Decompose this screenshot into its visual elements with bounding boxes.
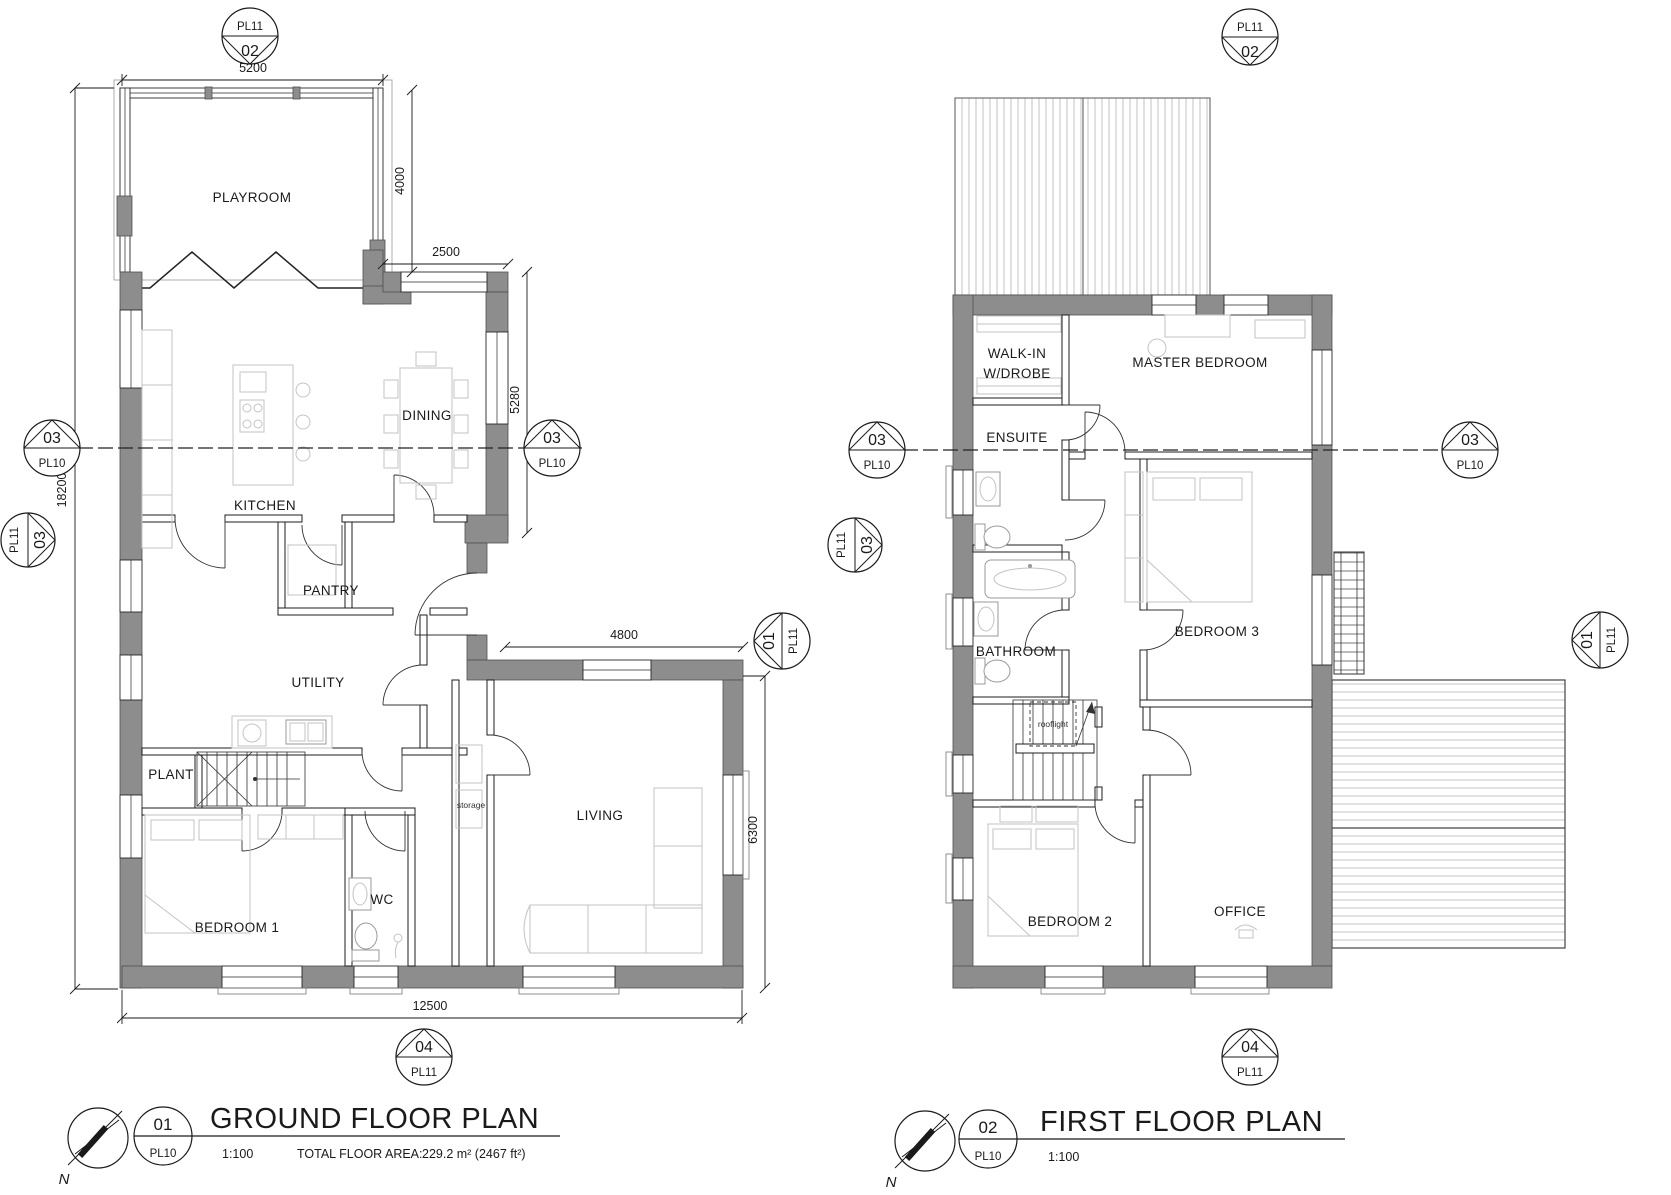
gf-scale: 1:100 xyxy=(222,1147,253,1161)
gf-title: GROUND FLOOR PLAN xyxy=(210,1103,539,1135)
ff-marker-top-sheet: PL11 xyxy=(1237,22,1263,34)
ff-marker-elev-right-sheet: PL11 xyxy=(1606,627,1618,653)
gf-marker-side-left-num: 03 xyxy=(32,531,49,549)
gf-label-storage: storage xyxy=(457,800,486,810)
ff-marker-bottom: 04 PL11 xyxy=(1222,1029,1278,1085)
ff-label-bathroom: BATHROOM xyxy=(976,644,1056,659)
gf-label-pantry: PANTRY xyxy=(303,583,359,598)
floor-plan-sheet: 5200 4000 2500 5280 18200 4800 6300 xyxy=(0,0,1671,1195)
gf-dim-bay-width: 2500 xyxy=(432,245,460,259)
gf-dim-overall-height: 18200 xyxy=(55,473,69,508)
gf-playroom-roof-outline xyxy=(114,80,392,280)
gf-title-number: 01 xyxy=(154,1115,173,1134)
gf-marker-section-right-sheet: PL10 xyxy=(539,458,566,470)
ff-title: FIRST FLOOR PLAN xyxy=(1040,1106,1323,1138)
gf-marker-section-left-num: 03 xyxy=(43,430,61,447)
gf-label-kitchen: KITCHEN xyxy=(234,498,296,513)
ff-marker-section-left-sheet: PL10 xyxy=(864,460,891,472)
ff-interior-walls xyxy=(973,315,1312,966)
gf-marker-section-left-sheet: PL10 xyxy=(39,458,66,470)
gf-playroom-glazing xyxy=(117,87,385,285)
ff-ensuite-fixtures xyxy=(975,472,1010,550)
ff-title-number: 02 xyxy=(979,1118,998,1137)
gf-label-plant: PLANT xyxy=(148,767,194,782)
gf-label-dining: DINING xyxy=(402,408,452,423)
gf-stairs xyxy=(197,752,305,806)
gf-windows xyxy=(120,272,749,994)
gf-dim-overall-width: 12500 xyxy=(413,999,448,1013)
plans-drawing: 5200 4000 2500 5280 18200 4800 6300 xyxy=(0,0,1671,1195)
gf-exterior-walls xyxy=(120,272,743,988)
ff-doors xyxy=(1025,405,1191,843)
gf-marker-section-right-num: 03 xyxy=(543,430,561,447)
gf-title-sheet: PL10 xyxy=(150,1148,177,1160)
ff-label-walkin1: WALK-IN xyxy=(988,346,1047,361)
ff-label-bedroom3: BEDROOM 3 xyxy=(1175,624,1260,639)
gf-bifold-doors xyxy=(131,252,363,288)
gf-bedroom1-furniture xyxy=(145,815,343,933)
ff-marker-elev-right-num: 01 xyxy=(1579,631,1596,649)
ff-flat-roof-hatch xyxy=(1332,680,1565,948)
ff-room-labels: WALK-IN W/DROBE MASTER BEDROOM ENSUITE B… xyxy=(976,346,1268,929)
gf-dim-bay-depth: 5280 xyxy=(508,386,522,414)
gf-marker-elev-right-sheet: PL11 xyxy=(788,628,800,654)
gf-marker-top: PL11 02 xyxy=(222,8,278,64)
gf-area-value: 229.2 m² (2467 ft²) xyxy=(422,1147,526,1161)
gf-marker-bottom: 04 PL11 xyxy=(396,1029,452,1085)
gf-marker-top-sheet: PL11 xyxy=(237,21,263,33)
ff-label-master: MASTER BEDROOM xyxy=(1132,355,1267,370)
gf-marker-elev-right: 01 PL11 xyxy=(754,613,810,669)
ff-office-phone xyxy=(1235,925,1257,938)
gf-dim-living-depth: 6300 xyxy=(746,816,760,844)
gf-dim-living-width: 4800 xyxy=(610,628,638,642)
gf-storage-shelves xyxy=(456,745,482,828)
ground-floor-plan: 5200 4000 2500 5280 18200 4800 6300 xyxy=(1,8,810,1188)
gf-marker-section-left: 03 PL10 xyxy=(24,420,80,476)
ff-bathroom-fixtures xyxy=(974,560,1075,684)
gf-area-label: TOTAL FLOOR AREA: xyxy=(297,1147,423,1161)
gf-label-playroom: PLAYROOM xyxy=(213,190,292,205)
gf-marker-section-right: 03 PL10 xyxy=(524,420,580,476)
ff-north-label: N xyxy=(886,1174,897,1191)
ff-label-office: OFFICE xyxy=(1214,904,1266,919)
gf-north-label: N xyxy=(59,1171,70,1188)
ff-marker-section-left: 03 PL10 xyxy=(849,422,905,478)
gf-marker-bottom-sheet: PL11 xyxy=(411,1067,437,1079)
ff-stairs xyxy=(1013,700,1097,800)
gf-dim-playroom-depth: 4000 xyxy=(393,167,407,195)
ff-roof-hatch xyxy=(955,98,1210,295)
ff-label-rooflight: rooflight xyxy=(1038,719,1069,729)
ff-master-furniture xyxy=(1148,315,1305,357)
ff-marker-top-num: 02 xyxy=(1241,44,1259,61)
ff-scale: 1:100 xyxy=(1048,1150,1079,1164)
ff-marker-bottom-sheet: PL11 xyxy=(1237,1067,1263,1079)
ff-marker-side-left: PL11 03 xyxy=(828,518,882,572)
ff-marker-section-right: 03 PL10 xyxy=(1442,422,1498,478)
ff-marker-section-right-num: 03 xyxy=(1461,432,1479,449)
gf-title-block: N 01 PL10 GROUND FLOOR PLAN 1:100 TOTAL … xyxy=(59,1103,560,1188)
ff-label-bedroom2: BEDROOM 2 xyxy=(1028,914,1113,929)
gf-utility-fixtures xyxy=(232,716,332,748)
gf-marker-top-num: 02 xyxy=(241,43,259,60)
gf-dining-furniture xyxy=(384,352,468,499)
gf-label-living: LIVING xyxy=(577,808,624,823)
ff-title-sheet: PL10 xyxy=(975,1151,1002,1163)
ff-marker-section-left-num: 03 xyxy=(868,432,886,449)
gf-marker-side-left-sheet: PL11 xyxy=(9,527,21,553)
ff-marker-side-left-sheet: PL11 xyxy=(836,532,848,558)
ff-title-block: N 02 PL10 FIRST FLOOR PLAN 1:100 xyxy=(886,1106,1345,1191)
ff-marker-elev-right: 01 PL11 xyxy=(1572,612,1628,668)
ff-ladder xyxy=(1334,552,1364,674)
ff-marker-side-left-num: 03 xyxy=(859,536,876,554)
gf-label-bedroom1: BEDROOM 1 xyxy=(195,920,280,935)
ff-label-walkin2: W/DROBE xyxy=(983,366,1050,381)
gf-label-wc: WC xyxy=(370,892,393,907)
ff-label-ensuite: ENSUITE xyxy=(986,430,1047,445)
gf-marker-elev-right-num: 01 xyxy=(761,632,778,650)
ff-marker-top: PL11 02 xyxy=(1222,9,1278,65)
gf-label-utility: UTILITY xyxy=(291,675,344,690)
first-floor-plan: WALK-IN W/DROBE MASTER BEDROOM ENSUITE B… xyxy=(828,9,1628,1191)
gf-marker-bottom-num: 04 xyxy=(415,1039,433,1056)
ff-marker-bottom-num: 04 xyxy=(1241,1039,1259,1056)
ff-marker-section-right-sheet: PL10 xyxy=(1457,460,1484,472)
gf-marker-side-left: PL11 03 xyxy=(1,513,55,567)
gf-wc-fixtures xyxy=(349,878,402,961)
